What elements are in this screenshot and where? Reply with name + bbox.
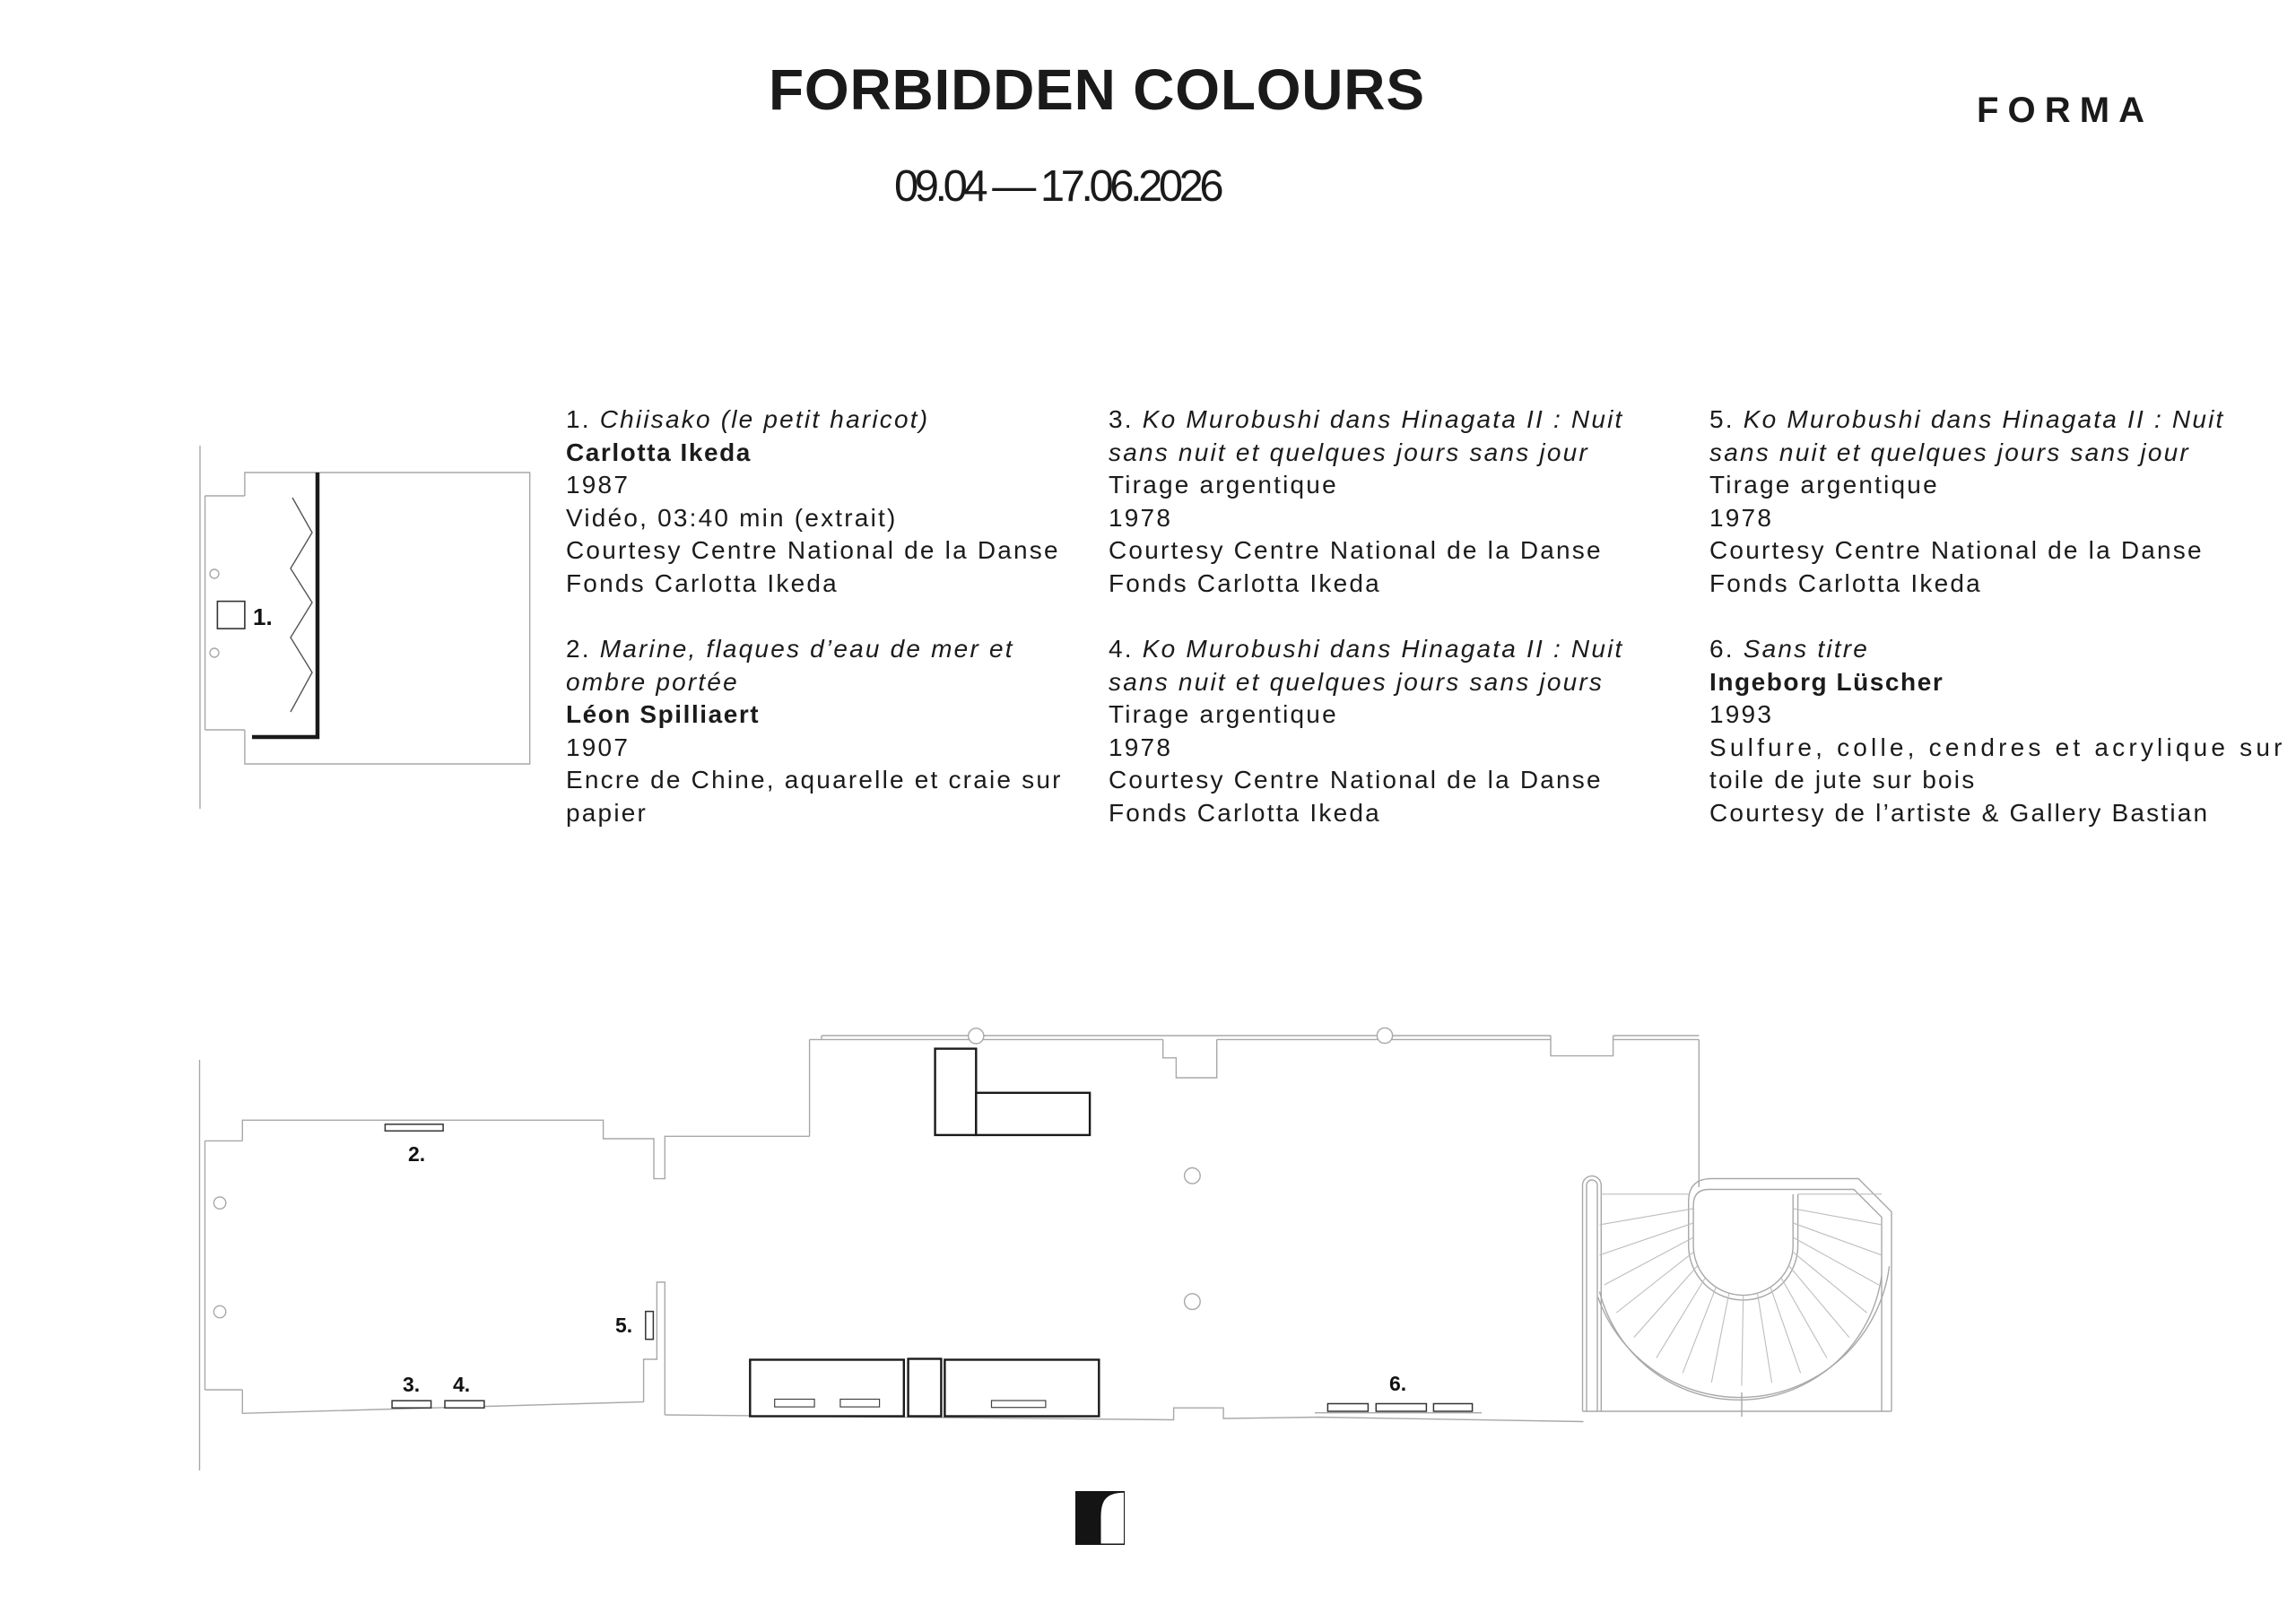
svg-text:2.: 2.	[408, 1142, 425, 1166]
svg-text:4.: 4.	[453, 1373, 470, 1396]
svg-text:1.: 1.	[253, 603, 273, 630]
svg-text:5.: 5.	[615, 1314, 632, 1337]
svg-text:6.: 6.	[1389, 1372, 1406, 1395]
svg-text:3.: 3.	[403, 1373, 420, 1396]
